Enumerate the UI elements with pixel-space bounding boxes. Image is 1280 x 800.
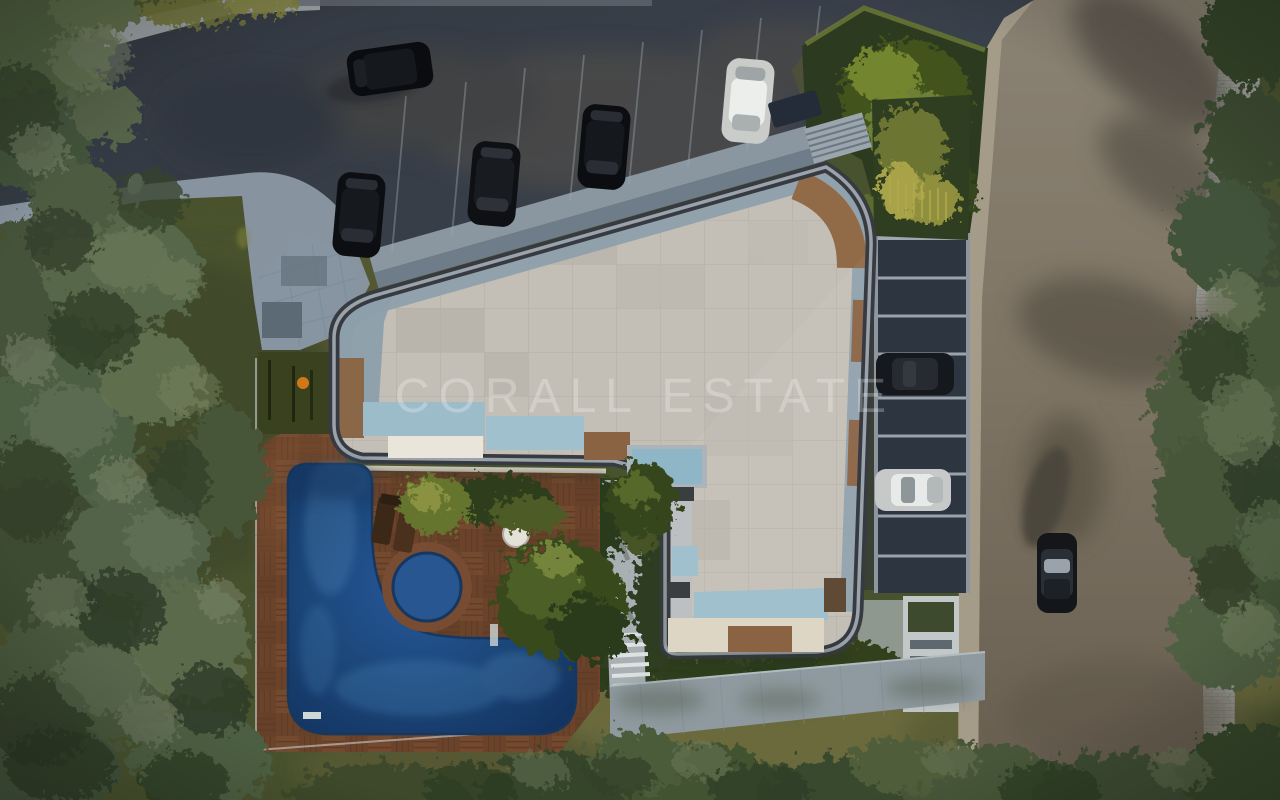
svg-text:CORALL ESTATE: CORALL ESTATE <box>395 370 895 423</box>
